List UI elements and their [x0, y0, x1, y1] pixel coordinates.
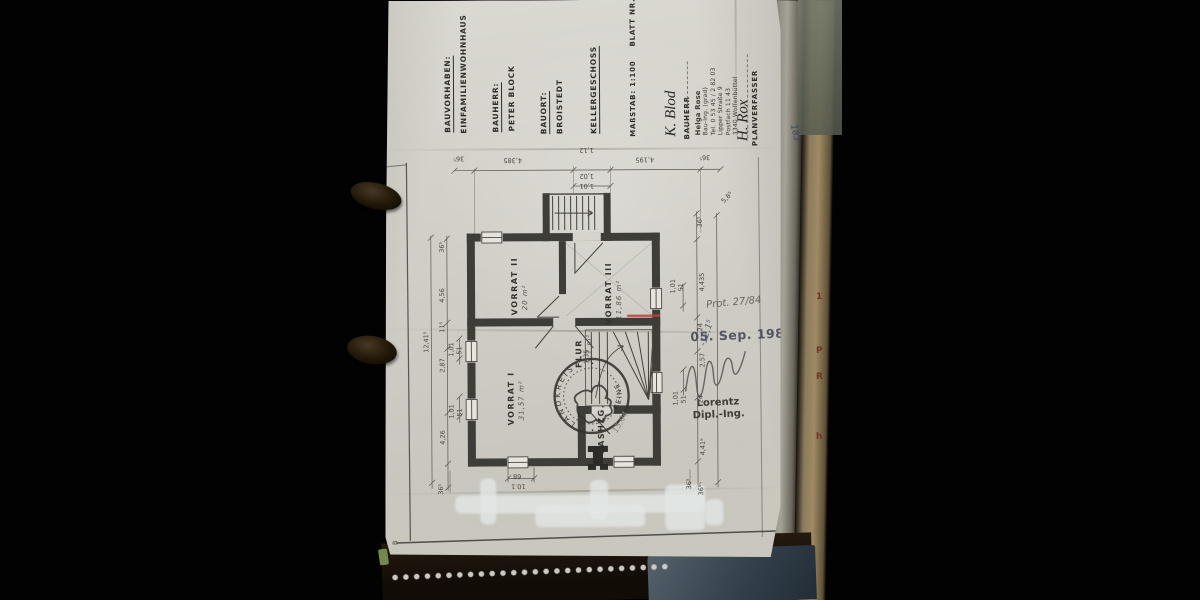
dimension-label: 1,01 [579, 182, 594, 190]
dimension-label: 24 [697, 395, 705, 403]
dimension-label: 24 [696, 323, 704, 331]
dimension-label: 11⁵ [438, 322, 446, 333]
dimension-label: 36⁵ [438, 242, 446, 253]
dimension-label: 51 [456, 408, 464, 416]
photo-scene: 183 1PRh [0, 0, 1200, 600]
dimension-label: 36⁵ [697, 484, 705, 495]
dimension-label: 1,02 [579, 172, 594, 180]
dimension-label: 68 [513, 472, 521, 480]
plan-sheet: LANDKREIS PEINE • • BAUVORHABEN: EINFAMI… [383, 0, 784, 559]
whiteout-blob [705, 499, 723, 525]
room-label: GASHZG. [597, 404, 607, 455]
dimension-label: 36⁵ [453, 155, 464, 163]
approver-signature [685, 351, 745, 397]
dimension-label: 2,87 [438, 358, 446, 373]
approver-title: Dipl.-Ing. [693, 408, 745, 421]
owner-signature: K. Blod [663, 91, 680, 137]
dimension-label: 36⁵ [696, 216, 704, 227]
bauherr-value: PETER BLOCK [507, 65, 516, 131]
address-stamp: Helga Rose Bau-Ing. (grad) Tel. 0 53 45 … [695, 67, 740, 135]
room-area: 11,86 m² [614, 262, 624, 320]
dimension-label: 51 [455, 346, 463, 354]
room-name: VORRAT II [510, 257, 520, 315]
dimension-label: 36⁵ [437, 484, 445, 495]
dimension-label: 1,01 [672, 391, 680, 406]
dimension-label: 12,41⁵ [422, 332, 430, 353]
bauvorhaben-label: BAUVORHABEN: [443, 56, 454, 133]
page-edge-letter: h [816, 432, 822, 442]
page-edge-letter: P [816, 346, 823, 356]
bauort-label: BAUORT: [539, 92, 550, 135]
whiteout-blob [590, 480, 608, 520]
dimension-label: 4,56 [438, 288, 446, 303]
room-area: 31,57 m² [516, 371, 526, 420]
bauvorhaben-value: EINFAMILIENWOHNHAUS [459, 14, 469, 133]
room-label: VORRAT I31,57 m² [506, 371, 526, 425]
svg-text:LANDKREIS: LANDKREIS [553, 363, 577, 429]
dimension-label: 1,01 [447, 342, 455, 357]
bauherr-label: BAUHERR: [491, 83, 502, 133]
scale-and-sheet: MAßSTAB: 1:100BLATT NR. 3 [628, 0, 637, 137]
dimension-label: 1,12 [579, 146, 594, 154]
room-area: 20 m² [520, 257, 530, 310]
dimension-label: 1,35 [582, 349, 590, 364]
page-edge-letter: R [816, 372, 823, 382]
room-name: VORRAT III [604, 262, 614, 325]
bauort-value: BROISTEDT [555, 79, 564, 134]
dimension-label: 4,195 [635, 156, 654, 164]
scale-label: MAßSTAB: 1:100 [629, 61, 637, 137]
page-edge-letter: 1 [816, 292, 822, 302]
room-name: VORRAT I [506, 371, 516, 425]
stamp-ring-text: LANDKREIS [553, 363, 577, 429]
sheet-number: BLATT NR. 3 [628, 0, 636, 47]
dimension-label: 51 [680, 395, 688, 403]
room-label: VORRAT III11,86 m² [604, 262, 624, 325]
sheet-title: KELLERGESCHOSS [589, 46, 600, 134]
dimension-label: 4,41⁵ [699, 438, 707, 455]
planner-caption: PLANVERFASSER [751, 70, 759, 146]
entrance-stairs [543, 194, 611, 230]
binder-top-patch [798, 0, 842, 135]
dimension-label: B [391, 540, 399, 545]
room-label: VORRAT II20 m² [510, 257, 530, 316]
dimension-label: 4,435 [698, 273, 706, 292]
svg-text:•: • [590, 428, 597, 432]
dimension-label: 1,01 [448, 404, 456, 419]
dimension-label: 36⁵ [699, 153, 710, 161]
dimension-label: 1,01 [669, 279, 677, 294]
dimension-label: 4,26 [439, 430, 447, 445]
dimension-label: 4,385 [503, 156, 522, 164]
whiteout-blob [480, 478, 496, 524]
dimension-label: 2,57 [698, 353, 706, 368]
dimension-label: 36⁵ [685, 479, 693, 490]
room-name: GASHZG. [597, 404, 607, 455]
dimension-label: 51 [677, 283, 685, 291]
dimension-label: 10.1 [511, 482, 526, 490]
address-city: 3340 Wolfenbüttel [732, 67, 740, 135]
